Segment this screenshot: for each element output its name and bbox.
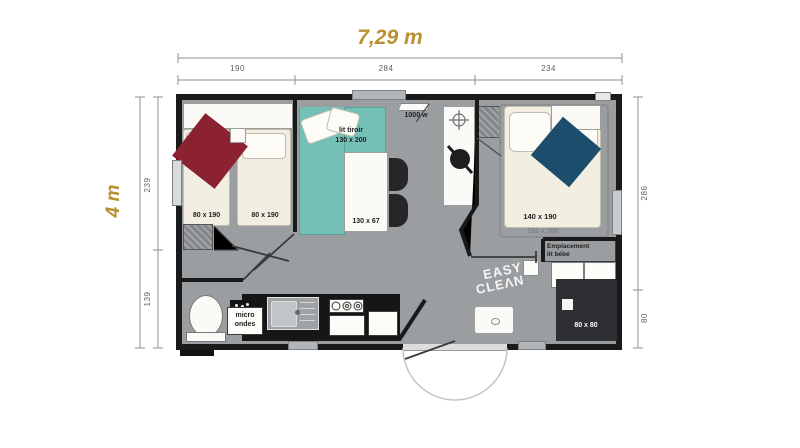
total-height-label: 4 m (103, 171, 121, 231)
drain-icon (491, 318, 500, 325)
entry-step (180, 350, 214, 356)
single-bed-1-size: 80 x 190 (184, 212, 229, 221)
window (612, 190, 622, 235)
sink-basin (271, 301, 297, 327)
window (518, 341, 546, 350)
dim-left-1: 239 (143, 163, 155, 207)
wardrobe-hatch-icon (183, 224, 213, 250)
bathroom-shelf (523, 260, 539, 276)
dim-right-2: 80 (640, 296, 652, 340)
kitchen-cabinet (329, 315, 365, 336)
dim-left-2: 139 (143, 277, 155, 321)
window (172, 160, 182, 206)
heater-icon (398, 103, 431, 111)
window (595, 92, 611, 101)
dim-right-1: 286 (640, 171, 652, 215)
hob-icon (329, 299, 364, 313)
single-bed-2-size: 80 x 190 (240, 212, 290, 221)
toilet-base (186, 332, 226, 342)
microwave: micro ondes (227, 307, 263, 335)
baby-bed-area: Emplacement lit bébé (543, 240, 616, 262)
sofa-label: lit tiroir (322, 127, 380, 136)
chair (389, 194, 408, 227)
window (288, 341, 318, 350)
entrance-opening (403, 343, 507, 351)
faucet-icon (295, 310, 300, 315)
shower: 80 x 80 (556, 279, 617, 341)
kitchen-cabinet (368, 311, 398, 336)
washbasin (474, 306, 514, 334)
heater-power: 1000 w (396, 112, 436, 121)
baby-bed-label-1: Emplacement (544, 241, 615, 251)
floorplan-page: 7,29 m 4 m 190 284 234 239 139 286 80 80… (0, 0, 800, 448)
pillow (242, 133, 286, 159)
double-bed-size: 140 x 190 (512, 212, 568, 221)
drainer-ridges (300, 302, 315, 303)
sink-icon (267, 297, 319, 330)
tall-unit (443, 106, 475, 206)
dim-top-2: 284 (297, 64, 475, 73)
microwave-label-1: micro (228, 308, 262, 321)
baby-bed-label-2: lit bébé (544, 251, 615, 259)
wardrobe-hatch-icon (476, 106, 501, 138)
sofa-size: 130 x 200 (322, 137, 380, 146)
window (352, 90, 406, 100)
dim-top-1: 190 (180, 64, 295, 73)
shower-tray-icon (562, 299, 573, 310)
chair (389, 158, 408, 191)
nightstand (230, 128, 246, 143)
total-width-label: 7,29 m (330, 26, 450, 50)
microwave-label-2: ondes (228, 321, 262, 330)
dim-top-3: 234 (475, 64, 622, 73)
double-bed-alt-size: 160 x 200 (515, 228, 571, 237)
door-arc (403, 348, 507, 400)
toilet-icon (189, 295, 223, 337)
table-size: 130 x 67 (345, 218, 387, 227)
shower-size: 80 x 80 (558, 322, 614, 331)
